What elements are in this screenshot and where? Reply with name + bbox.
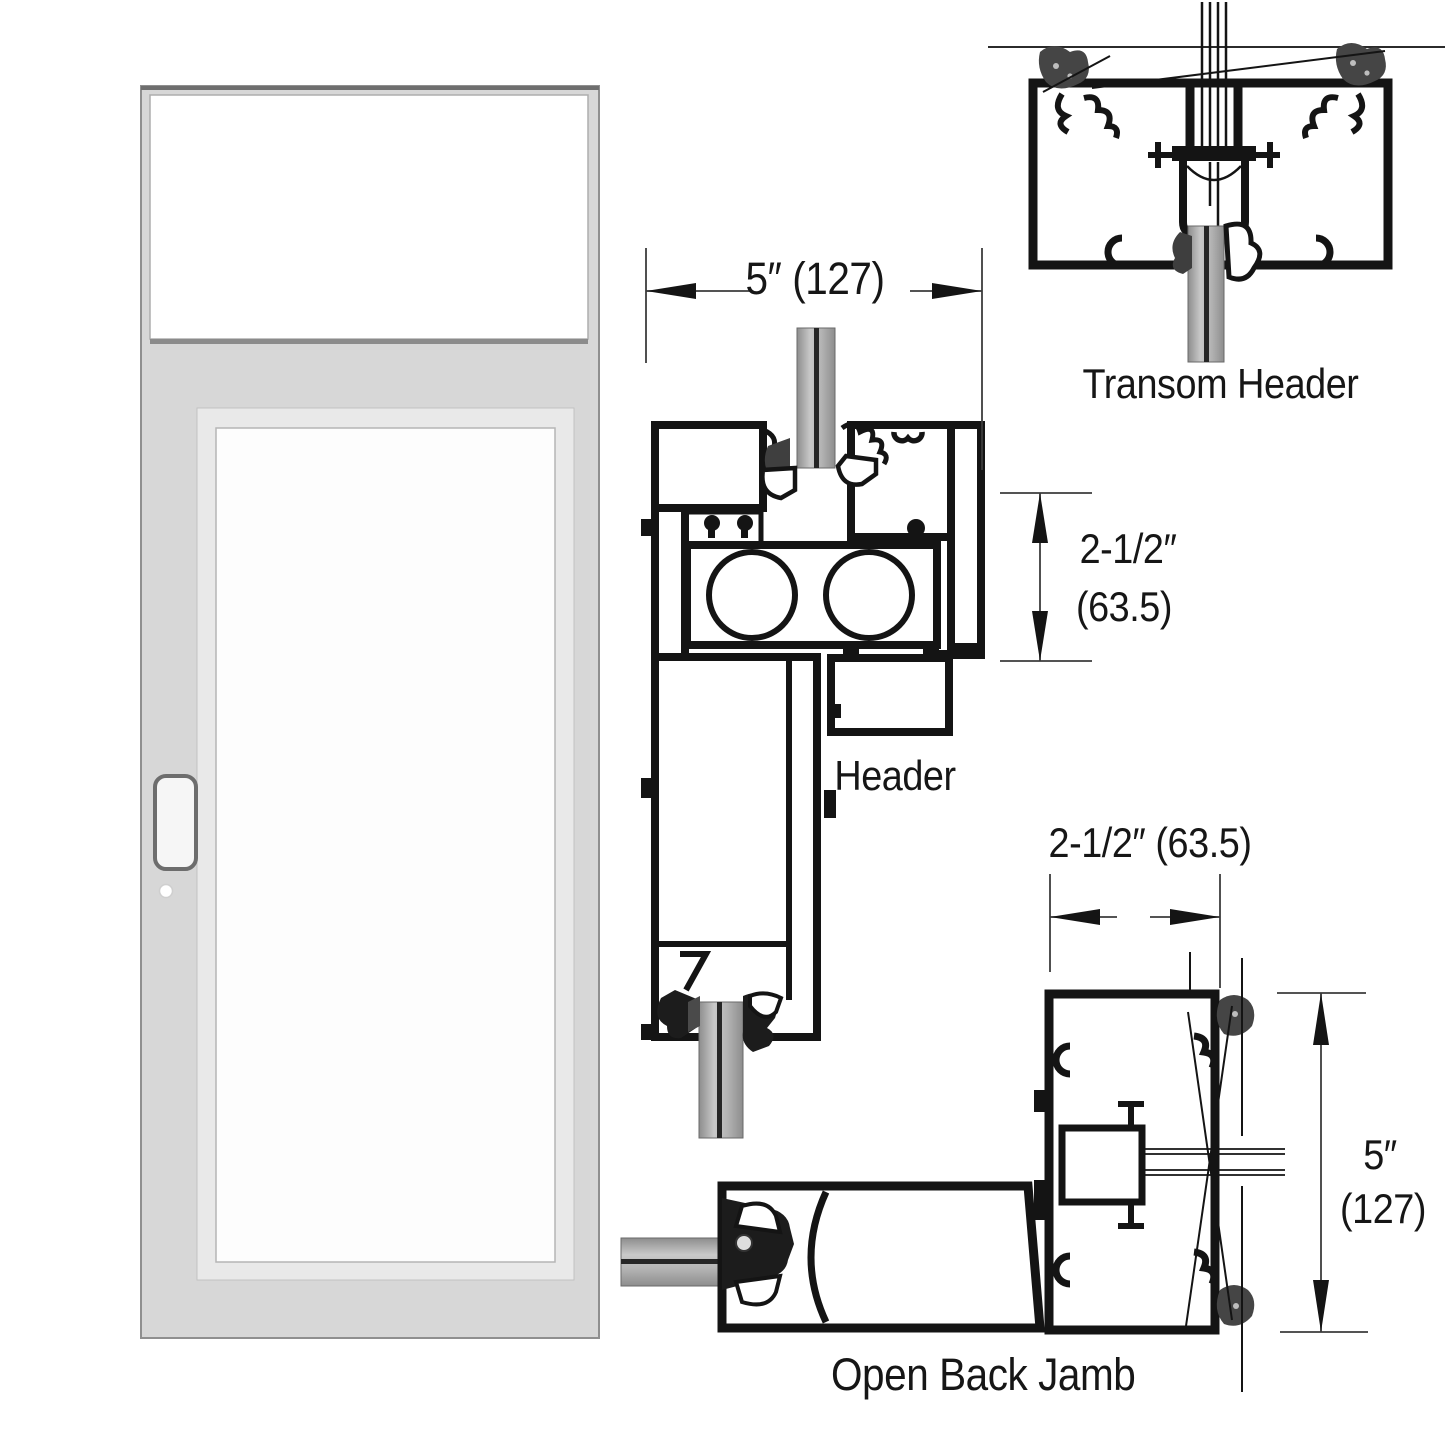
header-detail bbox=[641, 328, 983, 1138]
frame-top-edge bbox=[141, 86, 599, 90]
screw-boss-circle bbox=[709, 552, 795, 638]
transom-rail bbox=[150, 339, 588, 344]
arrowhead-up bbox=[1032, 493, 1048, 543]
dim-header-depth bbox=[1000, 493, 1092, 661]
dim-label-header-depth-inches: 2-1/2″ bbox=[1065, 528, 1191, 570]
dim-jamb-width bbox=[1050, 874, 1220, 988]
mullion-bar bbox=[1172, 146, 1256, 161]
dim-label-header-depth-mm: (63.5) bbox=[1061, 586, 1187, 628]
chamber bbox=[655, 508, 685, 657]
dim-label-jamb-width: 2-1/2″ (63.5) bbox=[1042, 822, 1258, 864]
sealant-blob bbox=[1336, 43, 1386, 86]
glass-stop bbox=[1062, 1128, 1142, 1202]
transom-panel bbox=[150, 95, 588, 339]
lock-indicator bbox=[160, 885, 173, 898]
arrowhead-left bbox=[1050, 909, 1100, 925]
sealant-blob bbox=[1039, 46, 1089, 89]
technical-diagram-page: 5″ (127) 2-1/2″ (63.5) 2-1/2″ (63.5) 5″ … bbox=[0, 0, 1445, 1445]
section-label-open-back-jamb: Open Back Jamb bbox=[831, 1352, 1119, 1397]
transom-header-detail bbox=[988, 2, 1445, 362]
door-glass bbox=[216, 428, 555, 1262]
glazing-wedge bbox=[750, 993, 781, 1016]
setting-block bbox=[1172, 232, 1192, 274]
arrowhead-down bbox=[1313, 1280, 1329, 1332]
chamber bbox=[655, 425, 763, 508]
glass-stripe bbox=[1204, 226, 1209, 362]
glazing-wedge bbox=[838, 456, 876, 485]
screw-head bbox=[736, 1235, 752, 1251]
screw-boss-circle bbox=[826, 552, 912, 638]
glass-stripe bbox=[717, 1002, 722, 1138]
arrowhead-right bbox=[1170, 909, 1220, 925]
dim-label-header-width: 5″ (127) bbox=[658, 256, 973, 301]
chamber bbox=[951, 425, 981, 655]
section-label-header: Header bbox=[801, 755, 990, 797]
arrowhead-up bbox=[1313, 993, 1329, 1045]
door-handle bbox=[155, 776, 196, 869]
door-leaf-rail bbox=[655, 657, 817, 1037]
glazing-wedge bbox=[762, 468, 795, 498]
section-label-transom-header: Transom Header bbox=[1079, 363, 1363, 405]
dim-label-jamb-height-inches: 5″ bbox=[1344, 1134, 1416, 1176]
glass-stripe bbox=[814, 328, 819, 468]
door-stop bbox=[831, 658, 949, 732]
diagram-canvas bbox=[0, 0, 1445, 1445]
door-elevation bbox=[141, 86, 599, 1338]
arrowhead-down bbox=[1032, 611, 1048, 661]
dim-label-jamb-height-mm: (127) bbox=[1334, 1188, 1433, 1230]
